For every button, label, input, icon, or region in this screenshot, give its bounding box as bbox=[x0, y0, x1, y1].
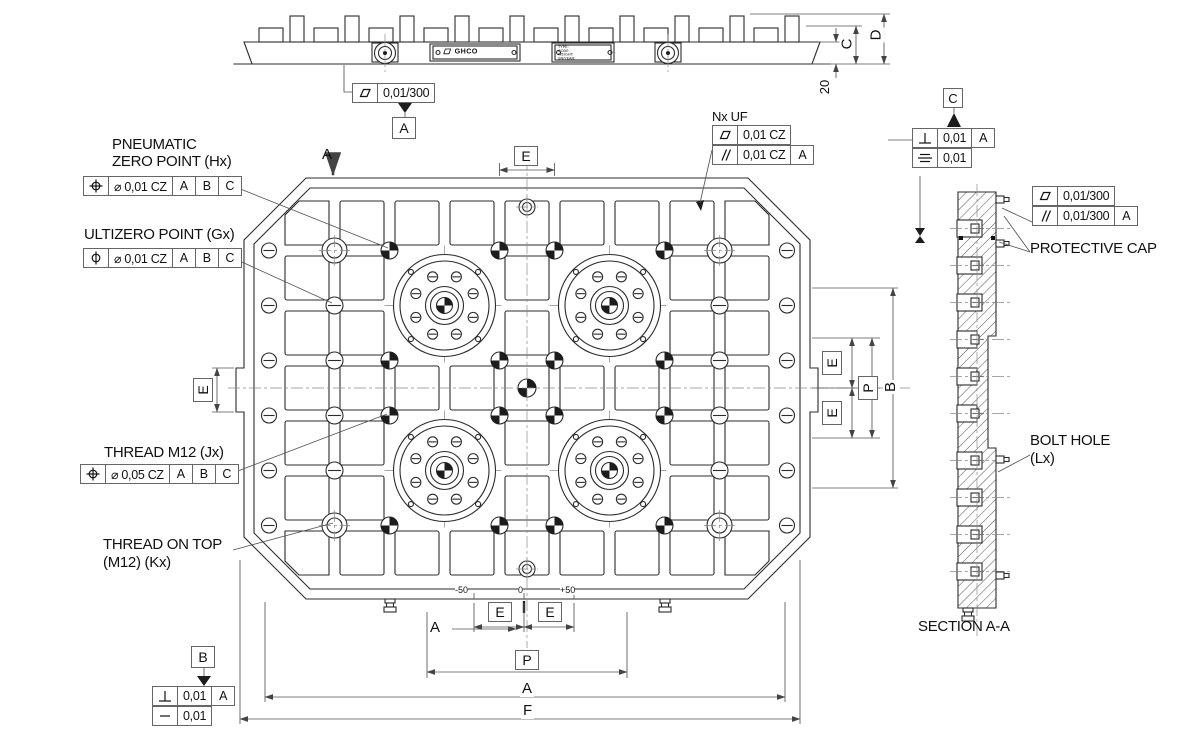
scale-tick-zero: 0 bbox=[518, 586, 523, 595]
fcf-datum: B bbox=[196, 249, 219, 267]
ultizero-point-label: ULTIZERO POINT (Gx) bbox=[84, 226, 234, 243]
bolt-hole-label2: (Lx) bbox=[1030, 450, 1055, 467]
fcf-datum: B bbox=[193, 465, 216, 483]
perpendicularity-icon bbox=[153, 687, 178, 705]
dim-b: B bbox=[883, 380, 899, 394]
thread-fcf: ⌀ 0,05 CZ A B C bbox=[80, 464, 239, 484]
datum-a-box: A bbox=[392, 117, 416, 139]
datum-a-fcf: 0,01/300 bbox=[352, 83, 435, 103]
dim-20-topview: 20 bbox=[817, 78, 833, 96]
scale-tick-minus50: -50 bbox=[455, 586, 468, 595]
perpendicularity-icon bbox=[913, 129, 938, 147]
dim-e-top: E bbox=[514, 146, 538, 166]
position-icon bbox=[84, 177, 109, 195]
fcf-datum: A bbox=[972, 129, 994, 147]
datum-c-box: C bbox=[943, 88, 963, 108]
section-mark-bottom: A bbox=[430, 619, 440, 636]
fcf-datum: A bbox=[212, 687, 234, 705]
fcf-tolerance: 0,01 bbox=[178, 707, 211, 725]
fcf-datum: A bbox=[791, 146, 813, 164]
datum-c-fcf-row1: 0,01 A bbox=[912, 128, 995, 148]
nameplate-line: SN/YEAR: bbox=[558, 56, 613, 60]
thread-on-top-label2: (M12) (Kx) bbox=[103, 554, 171, 571]
fcf-tolerance: ⌀ 0,05 CZ bbox=[106, 465, 170, 483]
circle-stile-icon bbox=[84, 249, 109, 267]
brand-logo-icon bbox=[441, 47, 452, 54]
dim-p-bottom: P bbox=[515, 650, 539, 670]
parallelism-icon bbox=[713, 146, 738, 164]
linework bbox=[197, 14, 1032, 724]
fcf-tolerance: ⌀ 0,01 CZ bbox=[109, 249, 173, 267]
nx-uf-fcf-row2: 0,01 CZ A bbox=[712, 145, 814, 165]
fcf-datum: A bbox=[173, 249, 196, 267]
type-nameplate: TYPE: CODE: WEIGHT: SN/YEAR: bbox=[558, 45, 613, 61]
engineering-drawing: PNEUMATIC ZERO POINT (Hx) ⌀ 0,01 CZ A B … bbox=[0, 0, 1182, 738]
fcf-tolerance: 0,01 bbox=[938, 149, 971, 167]
fcf-datum: C bbox=[216, 465, 238, 483]
dim-e-bottom-right: E bbox=[538, 602, 562, 622]
fcf-datum: A bbox=[173, 177, 196, 195]
fcf-tolerance: 0,01 bbox=[178, 687, 212, 705]
flatness-icon bbox=[1033, 187, 1058, 205]
nx-uf-label: Nx UF bbox=[712, 108, 747, 125]
dim-e-bottom-left: E bbox=[488, 602, 512, 622]
parallelism-icon bbox=[1033, 207, 1058, 225]
dim-c-topview: C bbox=[839, 37, 855, 52]
dim-d-topview: D bbox=[868, 28, 884, 43]
brand-nameplate: GHCO bbox=[441, 47, 478, 55]
section-title: SECTION A-A bbox=[918, 618, 1010, 635]
straightness-icon bbox=[153, 707, 178, 725]
datum-b-box: B bbox=[191, 646, 215, 668]
protective-cap-label: PROTECTIVE CAP bbox=[1030, 240, 1157, 257]
dim-p-right: P bbox=[858, 376, 878, 400]
brand-logo-text: GHCO bbox=[455, 47, 478, 55]
fcf-tolerance: 0,01/300 bbox=[1058, 207, 1115, 225]
symmetry-icon bbox=[913, 149, 938, 167]
dim-e-right-lower: E bbox=[822, 401, 842, 425]
scale-tick-plus50: +50 bbox=[560, 586, 575, 595]
fcf-tolerance: ⌀ 0,01 CZ bbox=[109, 177, 173, 195]
nx-uf-fcf-row1: 0,01 CZ bbox=[712, 125, 791, 145]
section-mark-top: A bbox=[322, 146, 332, 163]
fcf-tolerance: 0,01 CZ bbox=[738, 146, 791, 164]
fcf-tolerance: 0,01/300 bbox=[378, 84, 434, 102]
fcf-tolerance: 0,01/300 bbox=[1058, 187, 1114, 205]
dim-f: F bbox=[521, 703, 534, 719]
pneumatic-zero-point-label2: ZERO POINT (Hx) bbox=[112, 153, 231, 170]
dim-a: A bbox=[520, 681, 534, 697]
datum-c-fcf-row2: 0,01 bbox=[912, 148, 972, 168]
dim-e-left: E bbox=[193, 378, 213, 402]
pneumatic-zero-point-label: PNEUMATIC bbox=[112, 136, 197, 153]
fcf-tolerance: 0,01 CZ bbox=[738, 126, 790, 144]
datum-b-fcf-row1: 0,01 A bbox=[152, 686, 235, 706]
datum-b-fcf-row2: 0,01 bbox=[152, 706, 212, 726]
dim-e-right-upper: E bbox=[822, 351, 842, 375]
position-icon bbox=[81, 465, 106, 483]
thread-on-top-label: THREAD ON TOP bbox=[103, 536, 222, 553]
fcf-datum: A bbox=[1115, 207, 1137, 225]
fcf-tolerance: 0,01 bbox=[938, 129, 972, 147]
fcf-datum: A bbox=[170, 465, 193, 483]
thread-m12-label: THREAD M12 (Jx) bbox=[104, 444, 224, 461]
section-fcf-row2: 0,01/300 A bbox=[1032, 206, 1138, 226]
fcf-datum: B bbox=[196, 177, 219, 195]
fcf-datum: C bbox=[219, 249, 241, 267]
pneumatic-fcf: ⌀ 0,01 CZ A B C bbox=[83, 176, 242, 196]
fcf-datum: C bbox=[219, 177, 241, 195]
flatness-icon bbox=[353, 84, 378, 102]
ultizero-fcf: ⌀ 0,01 CZ A B C bbox=[83, 248, 242, 268]
flatness-icon bbox=[713, 126, 738, 144]
bolt-hole-label: BOLT HOLE bbox=[1030, 432, 1110, 449]
section-fcf-row1: 0,01/300 bbox=[1032, 186, 1115, 206]
